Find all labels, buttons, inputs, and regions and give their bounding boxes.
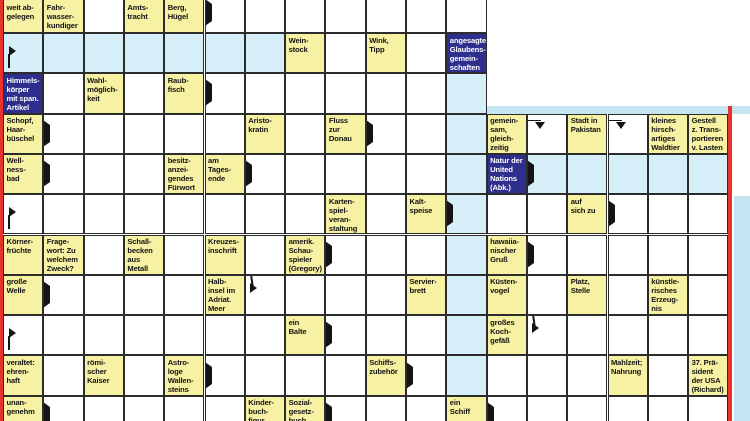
clue-text: Servier-brett	[410, 277, 446, 295]
clue-text: Platz,Stelle	[571, 277, 607, 295]
clue-cell-r3-c8: FlusszurDonau	[325, 114, 365, 154]
answer-cell-r1-c1[interactable]	[43, 33, 83, 73]
clue-cell-r6-c12: hawaiia-nischerGruß	[487, 235, 527, 275]
answer-cell-r6-c8[interactable]	[325, 235, 365, 275]
clue-text: Wein-stock	[289, 36, 325, 54]
arrow-right-icon	[43, 165, 50, 183]
answer-cell-r9-c12[interactable]	[487, 355, 527, 395]
answer-cell-r6-c13[interactable]	[527, 235, 567, 275]
answer-cell-r7-c13[interactable]	[527, 275, 567, 315]
answer-cell-r8-c11[interactable]	[446, 315, 486, 355]
arrow-down-icon	[663, 315, 673, 330]
arrow-right-icon	[325, 326, 332, 344]
answer-cell-r8-c16[interactable]	[648, 315, 688, 355]
answer-cell-r5-c1[interactable]	[43, 194, 83, 234]
arrow-right-icon	[43, 125, 50, 143]
arrow-down-icon	[179, 194, 189, 209]
arrow-bentright-icon	[531, 316, 547, 336]
answer-cell-r1-c3[interactable]	[124, 33, 164, 73]
answer-cell-r6-c16[interactable]	[648, 235, 688, 275]
clue-text: Well-ness-bad	[7, 156, 43, 183]
clue-cell-r5-c14: aufsich zu	[567, 194, 607, 234]
clue-cell-r2-c2: Wahl-möglich-keit	[84, 73, 124, 113]
answer-cell-r0-c8[interactable]	[325, 0, 365, 33]
clue-text: Amts-tracht	[127, 3, 163, 21]
arrow-down-icon	[461, 73, 471, 88]
clue-cell-r0-c0: weit ab-gelegen	[3, 0, 43, 33]
answer-cell-r4-c11[interactable]	[446, 154, 486, 194]
clue-cell-r3-c16: kleineshirsch-artigesWaldtier	[648, 114, 688, 154]
arrow-right-icon	[205, 4, 212, 22]
clue-cell-r0-c4: Berg,Hügel	[164, 0, 204, 33]
answer-cell-r5-c16[interactable]	[648, 194, 688, 234]
arrow-right-icon	[43, 407, 50, 421]
answer-cell-r2-c10[interactable]	[406, 73, 446, 113]
answer-cell-r8-c2[interactable]	[84, 315, 124, 355]
answer-cell-r5-c15[interactable]	[608, 194, 648, 234]
answer-cell-r8-c3[interactable]	[124, 315, 164, 355]
clue-cell-r10-c0: unan-genehm	[3, 396, 43, 421]
answer-cell-r4-c15[interactable]	[608, 154, 648, 194]
answer-cell-r5-c3[interactable]	[124, 194, 164, 234]
clue-text: einSchiff	[450, 398, 486, 416]
clue-cell-r6-c7: amerik.Schau-spieler(Gregory)	[285, 235, 325, 275]
right-section-top-strip	[487, 106, 750, 114]
answer-cell-r8-c0[interactable]	[3, 315, 43, 355]
answer-cell-r4-c3[interactable]	[124, 154, 164, 194]
clue-cell-r0-c1: Fahr-wasser-kundiger	[43, 0, 83, 33]
answer-cell-r3-c1[interactable]	[43, 114, 83, 154]
clue-cell-r7-c16: künstle-rischesErzeug-nis	[648, 275, 688, 315]
arrow-right-icon	[527, 246, 534, 264]
answer-cell-r0-c11[interactable]	[446, 0, 486, 33]
arrow-right-icon	[527, 165, 534, 183]
answer-cell-r2-c3[interactable]	[124, 73, 164, 113]
arrow-right-icon	[446, 205, 453, 223]
answer-cell-r3-c13[interactable]	[527, 114, 567, 154]
clue-text: großeWelle	[7, 277, 43, 295]
answer-cell-r8-c4[interactable]	[164, 315, 204, 355]
answer-cell-r0-c7[interactable]	[285, 0, 325, 33]
clue-text: Natur derUnitedNations(Abk.)	[490, 156, 526, 192]
clue-text: hawaiia-nischerGruß	[490, 237, 526, 264]
clue-cell-r9-c15: Mahlzeit;Nahrung	[608, 355, 648, 395]
clue-cell-r10-c6: Kinder-buch-figur	[245, 396, 285, 421]
clue-cell-r3-c12: gemein-sam,gleich-zeitig	[487, 114, 527, 154]
clue-text: Astro-logeWallen-steins	[168, 358, 204, 394]
answer-cell-r10-c13[interactable]	[527, 396, 567, 421]
arrow-right-icon	[43, 286, 50, 304]
arrow-right-icon	[205, 84, 212, 102]
answer-cell-r7-c15[interactable]	[608, 275, 648, 315]
clue-text: Küsten-vogel	[490, 277, 526, 295]
answer-cell-r6-c10[interactable]	[406, 235, 446, 275]
answer-cell-r6-c17[interactable]	[688, 235, 728, 275]
answer-cell-r10-c14[interactable]	[567, 396, 607, 421]
clue-cell-r7-c12: Küsten-vogel	[487, 275, 527, 315]
answer-cell-r8-c5[interactable]	[205, 315, 245, 355]
answer-cell-r10-c10[interactable]	[406, 396, 446, 421]
answer-cell-r1-c10[interactable]	[406, 33, 446, 73]
answer-cell-r4-c2[interactable]	[84, 154, 124, 194]
clue-text: amTages-ende	[208, 156, 244, 183]
answer-cell-r4-c7[interactable]	[285, 154, 325, 194]
answer-cell-r7-c17[interactable]	[688, 275, 728, 315]
clue-cell-r1-c7: Wein-stock	[285, 33, 325, 73]
arrow-right-icon	[325, 407, 332, 421]
arrow-down-icon	[703, 154, 713, 169]
arrow-right-icon	[608, 205, 615, 223]
clue-cell-r8-c12: großesKoch-gefäß	[487, 315, 527, 355]
arrow-right-icon	[406, 367, 413, 385]
answer-cell-r2-c6[interactable]	[245, 73, 285, 113]
clue-text: Halb-insel imAdriat.Meer	[208, 277, 244, 313]
clue-text: Fahr-wasser-kundiger	[47, 3, 83, 30]
answer-cell-r2-c9[interactable]	[366, 73, 406, 113]
arrow-entry-icon	[6, 207, 20, 231]
answer-cell-r10-c3[interactable]	[124, 396, 164, 421]
answer-cell-r7-c4[interactable]	[164, 275, 204, 315]
answer-cell-r2-c1[interactable]	[43, 73, 83, 113]
answer-cell-r5-c0[interactable]	[3, 194, 43, 234]
answer-cell-r0-c6[interactable]	[245, 0, 285, 33]
clue-text: unan-genehm	[7, 398, 43, 416]
answer-cell-r5-c5[interactable]	[205, 194, 245, 234]
clue-cell-r8-c7: einBalte	[285, 315, 325, 355]
clue-text: Stadt inPakistan	[571, 116, 607, 134]
clue-cell-r9-c2: römi-scherKaiser	[84, 355, 124, 395]
clue-cell-r3-c0: Schopf,Haar-büschel	[3, 114, 43, 154]
answer-cell-r9-c8[interactable]	[325, 355, 365, 395]
answer-cell-r10-c2[interactable]	[84, 396, 124, 421]
answer-cell-r1-c2[interactable]	[84, 33, 124, 73]
arrow-bentdown-icon	[609, 118, 629, 134]
arrow-right-icon	[487, 407, 494, 421]
clue-cell-r6-c5: Kreuzes-inschrift	[205, 235, 245, 275]
answer-cell-r9-c16[interactable]	[648, 355, 688, 395]
arrow-down-icon	[58, 33, 68, 48]
answer-cell-r5-c9[interactable]	[366, 194, 406, 234]
arrow-down-icon	[220, 315, 230, 330]
clue-cell-r7-c14: Platz,Stelle	[567, 275, 607, 315]
answer-cell-r5-c7[interactable]	[285, 194, 325, 234]
clue-text: gemein-sam,gleich-zeitig	[490, 116, 526, 152]
answer-cell-r5-c6[interactable]	[245, 194, 285, 234]
answer-cell-r7-c7[interactable]	[285, 275, 325, 315]
answer-cell-r10-c1[interactable]	[43, 396, 83, 421]
answer-cell-r7-c6[interactable]	[245, 275, 285, 315]
arrow-entry-icon	[6, 46, 20, 70]
clue-cell-r1-c9: Wink,Tipp	[366, 33, 406, 73]
answer-cell-r3-c2[interactable]	[84, 114, 124, 154]
answer-cell-r5-c12[interactable]	[487, 194, 527, 234]
far-right-cyan-strip	[734, 196, 750, 421]
answer-cell-r10-c15[interactable]	[608, 396, 648, 421]
clue-text: 37. Prä-sidentder USA(Richard)	[692, 358, 728, 394]
clue-text: Aristo-kratin	[248, 116, 284, 134]
answer-cell-r6-c9[interactable]	[366, 235, 406, 275]
clue-cell-r3-c14: Stadt inPakistan	[567, 114, 607, 154]
answer-cell-r8-c14[interactable]	[567, 315, 607, 355]
arrow-right-icon	[245, 165, 252, 183]
answer-cell-r6-c11[interactable]	[446, 235, 486, 275]
answer-cell-r8-c1[interactable]	[43, 315, 83, 355]
answer-cell-r10-c8[interactable]	[325, 396, 365, 421]
clue-text: angesagteGlaubens-gemein-schaften	[450, 36, 486, 72]
clue-text: römi-scherKaiser	[87, 358, 123, 385]
left-red-border	[0, 0, 3, 421]
clue-text: besitz-anzei-gendesFürwort	[168, 156, 204, 192]
clue-text: Frage-wort: ZuwelchemZweck?	[47, 237, 83, 273]
answer-cell-r8-c8[interactable]	[325, 315, 365, 355]
clue-text: Körner-früchte	[7, 237, 43, 255]
clue-cell-r2-c4: Raub-fisch	[164, 73, 204, 113]
answer-cell-r0-c2[interactable]	[84, 0, 124, 33]
clue-cell-r9-c9: Schiffs-zubehör	[366, 355, 406, 395]
answer-cell-r1-c0[interactable]	[3, 33, 43, 73]
clue-text: Sozial-gesetz-buch	[289, 398, 325, 421]
answer-cell-r3-c7[interactable]	[285, 114, 325, 154]
arrow-down-icon	[703, 396, 713, 411]
answer-cell-r4-c1[interactable]	[43, 154, 83, 194]
answer-cell-r7-c1[interactable]	[43, 275, 83, 315]
answer-cell-r7-c9[interactable]	[366, 275, 406, 315]
clue-cell-r4-c0: Well-ness-bad	[3, 154, 43, 194]
clue-cell-r6-c0: Körner-früchte	[3, 235, 43, 275]
clue-cell-r6-c3: Schall-beckenausMetall	[124, 235, 164, 275]
clue-cell-r7-c10: Servier-brett	[406, 275, 446, 315]
answer-cell-r8-c6[interactable]	[245, 315, 285, 355]
answer-cell-r4-c13[interactable]	[527, 154, 567, 194]
answer-cell-r9-c3[interactable]	[124, 355, 164, 395]
arrow-entry-icon	[6, 328, 20, 352]
clue-text: amerik.Schau-spieler(Gregory)	[289, 237, 325, 273]
answer-cell-r2-c5[interactable]	[205, 73, 245, 113]
clue-text: Gestellz. Trans-portierenv. Lasten	[692, 116, 728, 152]
answer-cell-r3-c4[interactable]	[164, 114, 204, 154]
clue-cell-r10-c11: einSchiff	[446, 396, 486, 421]
answer-cell-r9-c11[interactable]	[446, 355, 486, 395]
clue-text: kleineshirsch-artigesWaldtier	[651, 116, 687, 152]
answer-cell-r7-c11[interactable]	[446, 275, 486, 315]
arrow-down-icon	[381, 73, 391, 88]
answer-cell-r2-c11[interactable]	[446, 73, 486, 113]
answer-cell-r6-c2[interactable]	[84, 235, 124, 275]
clue-text: FlusszurDonau	[329, 116, 365, 143]
arrow-down-icon	[99, 114, 109, 129]
clue-text: Schopf,Haar-büschel	[7, 116, 43, 143]
arrow-down-icon	[582, 315, 592, 330]
arrow-down-icon	[139, 33, 149, 48]
arrow-right-icon	[325, 246, 332, 264]
clue-cell-r3-c17: Gestellz. Trans-portierenv. Lasten	[688, 114, 728, 154]
arrow-down-icon	[502, 355, 512, 370]
arrow-down-icon	[58, 275, 68, 290]
arrow-right-icon	[366, 125, 373, 143]
answer-cell-r9-c6[interactable]	[245, 355, 285, 395]
arrow-down-icon	[300, 73, 310, 88]
answer-cell-r3-c9[interactable]	[366, 114, 406, 154]
answer-cell-r4-c14[interactable]	[567, 154, 607, 194]
answer-cell-r1-c8[interactable]	[325, 33, 365, 73]
answer-cell-r5-c13[interactable]	[527, 194, 567, 234]
answer-cell-r8-c9[interactable]	[366, 315, 406, 355]
answer-cell-r0-c5[interactable]	[205, 0, 245, 33]
clue-text: Raub-fisch	[168, 76, 204, 94]
clue-text: aufsich zu	[571, 197, 607, 215]
arrow-down-icon	[139, 275, 149, 290]
clue-cell-r10-c7: Sozial-gesetz-buch	[285, 396, 325, 421]
clue-cell-r2-c0: Himmels-körpermit span.Artikel	[3, 73, 43, 113]
clue-cell-r7-c0: großeWelle	[3, 275, 43, 315]
answer-cell-r9-c10[interactable]	[406, 355, 446, 395]
clue-text: veraltet:ehren-haft	[7, 358, 43, 385]
answer-cell-r9-c14[interactable]	[567, 355, 607, 395]
answer-cell-r6-c4[interactable]	[164, 235, 204, 275]
clue-cell-r3-c6: Aristo-kratin	[245, 114, 285, 154]
answer-cell-r7-c3[interactable]	[124, 275, 164, 315]
arrow-down-icon	[260, 154, 270, 169]
right-red-border	[728, 106, 731, 421]
clue-text: weit ab-gelegen	[7, 3, 43, 21]
answer-cell-r9-c1[interactable]	[43, 355, 83, 395]
answer-cell-r9-c7[interactable]	[285, 355, 325, 395]
answer-cell-r8-c17[interactable]	[688, 315, 728, 355]
answer-cell-r1-c6[interactable]	[245, 33, 285, 73]
answer-cell-r9-c13[interactable]	[527, 355, 567, 395]
clue-text: Himmels-körpermit span.Artikel	[7, 76, 43, 112]
answer-cell-r10-c17[interactable]	[688, 396, 728, 421]
answer-cell-r4-c9[interactable]	[366, 154, 406, 194]
answer-cell-r6-c14[interactable]	[567, 235, 607, 275]
answer-cell-r9-c5[interactable]	[205, 355, 245, 395]
clue-cell-r9-c17: 37. Prä-sidentder USA(Richard)	[688, 355, 728, 395]
clue-cell-r5-c8: Karten-spiel-veran-staltung	[325, 194, 365, 234]
answer-cell-r10-c12[interactable]	[487, 396, 527, 421]
answer-cell-r8-c13[interactable]	[527, 315, 567, 355]
answer-cell-r8-c10[interactable]	[406, 315, 446, 355]
answer-cell-r4-c10[interactable]	[406, 154, 446, 194]
arrow-bentright-icon	[249, 276, 265, 296]
clue-text: Schiffs-zubehör	[369, 358, 405, 376]
clue-cell-r4-c12: Natur derUnitedNations(Abk.)	[487, 154, 527, 194]
answer-cell-r7-c8[interactable]	[325, 275, 365, 315]
answer-cell-r3-c5[interactable]	[205, 114, 245, 154]
answer-cell-r3-c11[interactable]	[446, 114, 486, 154]
arrow-down-icon	[623, 396, 633, 411]
answer-cell-r5-c2[interactable]	[84, 194, 124, 234]
arrow-down-icon	[99, 396, 109, 411]
clue-text: Berg,Hügel	[168, 3, 204, 21]
clue-cell-r6-c1: Frage-wort: ZuwelchemZweck?	[43, 235, 83, 275]
clue-cell-r7-c5: Halb-insel imAdriat.Meer	[205, 275, 245, 315]
answer-cell-r4-c17[interactable]	[688, 154, 728, 194]
clue-text: Kinder-buch-figur	[248, 398, 284, 421]
answer-cell-r10-c4[interactable]	[164, 396, 204, 421]
answer-cell-r6-c6[interactable]	[245, 235, 285, 275]
clue-cell-r9-c4: Astro-logeWallen-steins	[164, 355, 204, 395]
clue-cell-r9-c0: veraltet:ehren-haft	[3, 355, 43, 395]
answer-cell-r4-c16[interactable]	[648, 154, 688, 194]
answer-cell-r2-c8[interactable]	[325, 73, 365, 113]
clue-cell-r4-c5: amTages-ende	[205, 154, 245, 194]
arrow-down-icon	[663, 154, 673, 169]
answer-cell-r5-c11[interactable]	[446, 194, 486, 234]
answer-cell-r1-c4[interactable]	[164, 33, 204, 73]
answer-cell-r0-c9[interactable]	[366, 0, 406, 33]
clue-text: Kalt-speise	[410, 197, 446, 215]
answer-cell-r8-c15[interactable]	[608, 315, 648, 355]
clue-cell-r1-c11: angesagteGlaubens-gemein-schaften	[446, 33, 486, 73]
arrow-down-icon	[341, 235, 351, 250]
arrow-down-icon	[421, 315, 431, 330]
answer-cell-r10-c5[interactable]	[205, 396, 245, 421]
arrow-right-icon	[205, 367, 212, 385]
arrow-bentdown-icon	[528, 118, 548, 134]
answer-cell-r5-c17[interactable]	[688, 194, 728, 234]
answer-cell-r2-c7[interactable]	[285, 73, 325, 113]
clue-text: Mahlzeit;Nahrung	[611, 358, 647, 376]
clue-cell-r0-c3: Amts-tracht	[124, 0, 164, 33]
clue-cell-r4-c4: besitz-anzei-gendesFürwort	[164, 154, 204, 194]
answer-cell-r1-c5[interactable]	[205, 33, 245, 73]
answer-cell-r4-c8[interactable]	[325, 154, 365, 194]
answer-cell-r10-c16[interactable]	[648, 396, 688, 421]
answer-cell-r3-c10[interactable]	[406, 114, 446, 154]
answer-cell-r6-c15[interactable]	[608, 235, 648, 275]
clue-text: Wahl-möglich-keit	[87, 76, 123, 103]
clue-text: Karten-spiel-veran-staltung	[329, 197, 365, 233]
clue-text: Schall-beckenausMetall	[127, 237, 163, 273]
answer-cell-r0-c10[interactable]	[406, 0, 446, 33]
crossword-grid: weit ab-gelegenFahr-wasser-kundigerAmts-…	[0, 0, 750, 421]
answer-cell-r10-c9[interactable]	[366, 396, 406, 421]
answer-cell-r3-c15[interactable]	[608, 114, 648, 154]
answer-cell-r7-c2[interactable]	[84, 275, 124, 315]
clue-text: künstle-rischesErzeug-nis	[651, 277, 687, 313]
clue-text: Kreuzes-inschrift	[208, 237, 244, 255]
clue-text: großesKoch-gefäß	[490, 318, 526, 345]
answer-cell-r5-c4[interactable]	[164, 194, 204, 234]
clue-cell-r5-c10: Kalt-speise	[406, 194, 446, 234]
answer-cell-r4-c6[interactable]	[245, 154, 285, 194]
clue-text: Wink,Tipp	[369, 36, 405, 54]
clue-text: einBalte	[289, 318, 325, 336]
answer-cell-r3-c3[interactable]	[124, 114, 164, 154]
